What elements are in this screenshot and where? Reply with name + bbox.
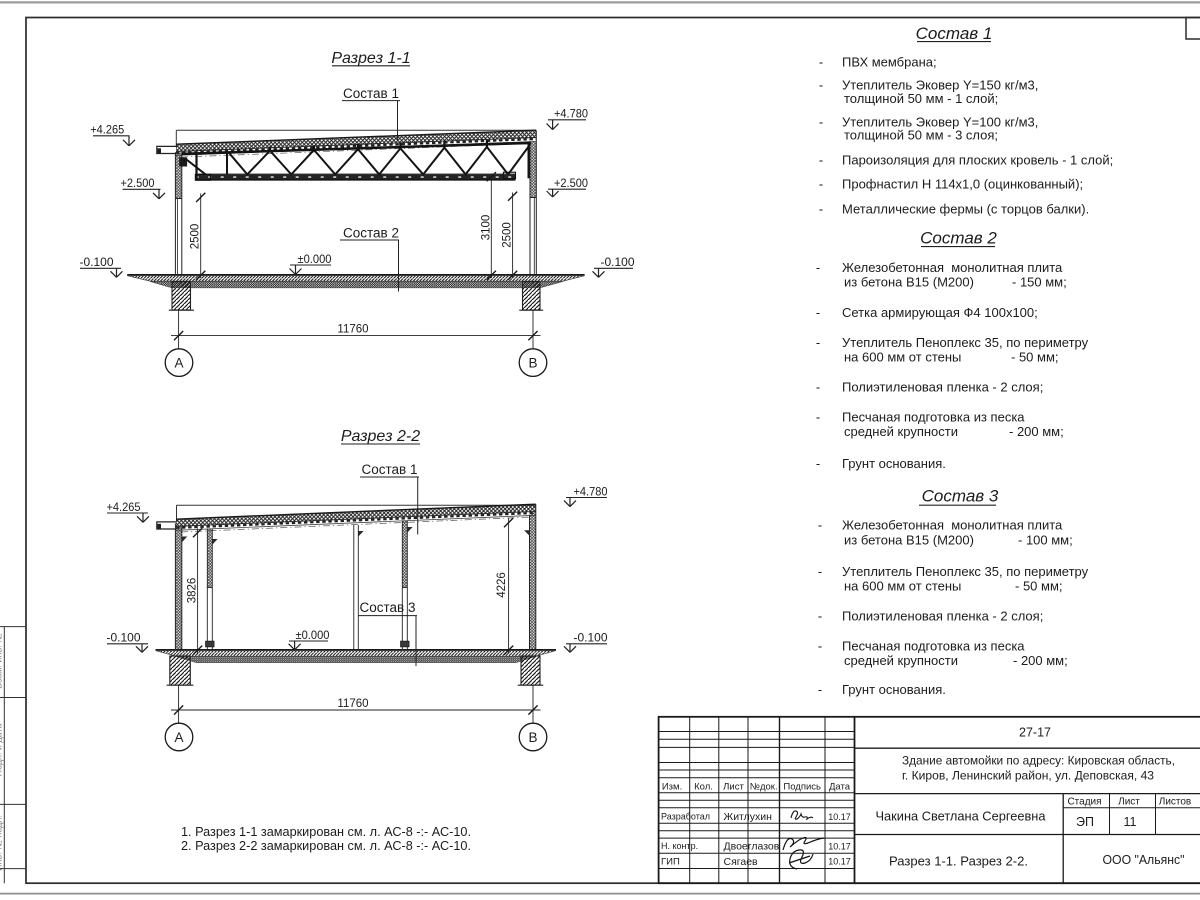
svg-text:- 100 мм;: - 100 мм; xyxy=(1018,532,1073,547)
svg-text:Кол.: Кол. xyxy=(694,781,713,792)
svg-text:ООО "Альянс": ООО "Альянс" xyxy=(1103,853,1185,867)
svg-text:Песчаная подготовка из песка: Песчаная подготовка из песка xyxy=(842,410,1025,425)
svg-text:Полиэтиленовая пленка - 2 слоя: Полиэтиленовая пленка - 2 слоя; xyxy=(842,380,1043,395)
svg-text:Железобетонная монолитная пли: Железобетонная монолитная плита xyxy=(842,260,1063,275)
svg-text:Инв. № подл.: Инв. № подл. xyxy=(0,815,4,871)
svg-text:27-17: 27-17 xyxy=(1019,726,1051,740)
svg-text:А: А xyxy=(174,730,183,745)
svg-text:Состав 2: Состав 2 xyxy=(920,229,997,248)
svg-text:Грунт основания.: Грунт основания. xyxy=(842,456,946,471)
svg-text:Стадия: Стадия xyxy=(1067,797,1101,808)
svg-text:№док.: №док. xyxy=(750,781,778,792)
svg-text:-0.100: -0.100 xyxy=(601,255,635,269)
svg-text:11760: 11760 xyxy=(337,324,368,336)
svg-text:Утеплитель Пеноплекс 35, по пе: Утеплитель Пеноплекс 35, по периметру xyxy=(842,335,1089,350)
svg-text:+4.265: +4.265 xyxy=(107,500,141,514)
svg-text:средней крупности: средней крупности xyxy=(844,424,958,439)
svg-text:-: - xyxy=(816,410,820,425)
svg-text:Песчаная подготовка из песка: Песчаная подготовка из песка xyxy=(842,638,1025,653)
svg-text:-: - xyxy=(819,152,823,167)
svg-text:Разрез 2-2: Разрез 2-2 xyxy=(341,428,420,445)
svg-text:ЭП: ЭП xyxy=(1076,815,1094,829)
svg-text:+4.780: +4.780 xyxy=(574,484,608,498)
svg-text:- 50 мм;: - 50 мм; xyxy=(1015,579,1063,594)
svg-text:- 150 мм;: - 150 мм; xyxy=(1012,275,1067,290)
svg-text:±0.000: ±0.000 xyxy=(296,628,330,642)
svg-text:-: - xyxy=(816,335,820,350)
svg-text:Утеплитель Пеноплекс 35, по пе: Утеплитель Пеноплекс 35, по периметру xyxy=(842,564,1089,579)
svg-text:Лист: Лист xyxy=(723,781,744,792)
svg-text:Полиэтиленовая пленка - 2 слоя: Полиэтиленовая пленка - 2 слоя; xyxy=(842,609,1043,624)
svg-text:1. Разрез 1-1 замаркирован см.: 1. Разрез 1-1 замаркирован см. л. АС-8 -… xyxy=(181,824,471,839)
svg-text:-: - xyxy=(818,638,822,653)
svg-text:средней крупности: средней крупности xyxy=(844,653,958,668)
svg-text:В: В xyxy=(528,730,537,745)
svg-text:из бетона В15 (М200): из бетона В15 (М200) xyxy=(844,532,974,547)
svg-text:Здание автомойки по адресу: Ки: Здание автомойки по адресу: Кировская об… xyxy=(902,754,1175,768)
svg-text:+4.780: +4.780 xyxy=(554,107,588,121)
svg-text:11760: 11760 xyxy=(337,698,368,710)
svg-text:11: 11 xyxy=(1124,815,1137,829)
svg-text:-: - xyxy=(818,609,822,624)
svg-text:Состав 1: Состав 1 xyxy=(916,24,993,43)
svg-text:Лист: Лист xyxy=(1118,797,1140,808)
svg-text:Чакина Светлана Сергеевна: Чакина Светлана Сергеевна xyxy=(876,810,1046,824)
svg-text:на 600 мм от стены: на 600 мм от стены xyxy=(844,350,961,365)
svg-text:-0.100: -0.100 xyxy=(574,631,608,645)
svg-text:2500: 2500 xyxy=(190,224,202,250)
svg-text:-: - xyxy=(819,201,823,216)
svg-text:Житлухин: Житлухин xyxy=(724,811,773,823)
svg-text:Состав 1: Состав 1 xyxy=(343,86,399,101)
svg-text:Разрез 1-1: Разрез 1-1 xyxy=(331,50,410,67)
svg-text:толщиной 50 мм - 3 слоя;: толщиной 50 мм - 3 слоя; xyxy=(844,128,998,143)
svg-text:А: А xyxy=(174,355,183,370)
svg-text:толщиной 50 мм - 1 слой;: толщиной 50 мм - 1 слой; xyxy=(844,91,998,106)
svg-text:4226: 4226 xyxy=(496,572,508,598)
svg-text:на 600 мм от стены: на 600 мм от стены xyxy=(844,579,961,594)
svg-text:10.17: 10.17 xyxy=(828,842,851,852)
svg-text:-: - xyxy=(816,456,820,471)
svg-text:+4.265: +4.265 xyxy=(90,123,124,137)
svg-text:ГИП: ГИП xyxy=(661,856,680,867)
svg-text:3100: 3100 xyxy=(480,215,492,241)
svg-text:Изм.: Изм. xyxy=(662,781,682,792)
svg-text:2500: 2500 xyxy=(502,222,514,248)
svg-text:10.17: 10.17 xyxy=(828,857,851,867)
svg-text:-: - xyxy=(818,518,822,533)
svg-text:Состав 3: Состав 3 xyxy=(922,487,999,506)
svg-text:Листов: Листов xyxy=(1159,797,1192,808)
svg-text:-: - xyxy=(819,55,823,70)
svg-text:-: - xyxy=(816,305,820,320)
svg-text:Н. контр.: Н. контр. xyxy=(661,841,698,851)
svg-text:-: - xyxy=(819,176,823,191)
svg-text:Состав 3: Состав 3 xyxy=(360,600,416,615)
svg-text:Профнастил Н 114х1,0 (оцинкова: Профнастил Н 114х1,0 (оцинкованный); xyxy=(842,176,1083,191)
svg-text:Разработал: Разработал xyxy=(661,811,710,821)
svg-text:Двоеглазов: Двоеглазов xyxy=(724,840,780,852)
svg-text:-0.100: -0.100 xyxy=(107,631,141,645)
svg-text:Железобетонная монолитная пли: Железобетонная монолитная плита xyxy=(842,518,1063,533)
svg-text:-0.100: -0.100 xyxy=(80,255,114,269)
svg-text:-: - xyxy=(816,380,820,395)
svg-text:Состав 2: Состав 2 xyxy=(343,226,399,241)
svg-text:- 200 мм;: - 200 мм; xyxy=(1013,653,1068,668)
svg-text:10.17: 10.17 xyxy=(828,812,851,822)
svg-text:Металлические фермы (с торцов: Металлические фермы (с торцов балки). xyxy=(842,201,1089,216)
svg-text:-: - xyxy=(819,78,823,93)
svg-text:ПВХ мембрана;: ПВХ мембрана; xyxy=(842,55,937,70)
svg-text:Сягаев: Сягаев xyxy=(724,856,759,868)
svg-text:-: - xyxy=(818,682,822,697)
svg-text:- 50 мм;: - 50 мм; xyxy=(1011,350,1059,365)
svg-text:Разрез 1-1. Разрез 2-2.: Разрез 1-1. Разрез 2-2. xyxy=(889,854,1028,868)
svg-text:-: - xyxy=(819,114,823,129)
svg-text:В: В xyxy=(528,355,537,370)
svg-text:Взам. инв. №: Взам. инв. № xyxy=(0,633,4,689)
svg-text:Грунт основания.: Грунт основания. xyxy=(842,682,946,697)
svg-text:Подп. и дата: Подп. и дата xyxy=(0,723,4,776)
svg-text:Дата: Дата xyxy=(829,781,851,792)
svg-text:Подпись: Подпись xyxy=(783,781,821,792)
svg-text:Пароизоляция для плоских крове: Пароизоляция для плоских кровель - 1 сло… xyxy=(842,152,1113,167)
svg-text:+2.500: +2.500 xyxy=(121,176,155,190)
svg-text:3826: 3826 xyxy=(187,578,199,604)
svg-text:Состав 1: Состав 1 xyxy=(362,462,418,477)
svg-text:из бетона В15 (М200): из бетона В15 (М200) xyxy=(844,275,974,290)
svg-text:г. Киров, Ленинский район, ул.: г. Киров, Ленинский район, ул. Деповская… xyxy=(902,769,1154,783)
svg-text:Сетка армирующая Ф4 100х100;: Сетка армирующая Ф4 100х100; xyxy=(842,305,1038,320)
svg-text:+2.500: +2.500 xyxy=(554,176,588,190)
svg-text:- 200 мм;: - 200 мм; xyxy=(1009,424,1064,439)
svg-text:-: - xyxy=(816,260,820,275)
svg-text:-: - xyxy=(818,564,822,579)
svg-text:±0.000: ±0.000 xyxy=(298,252,332,266)
svg-text:2. Разрез 2-2 замаркирован см.: 2. Разрез 2-2 замаркирован см. л. АС-8 -… xyxy=(181,838,471,853)
